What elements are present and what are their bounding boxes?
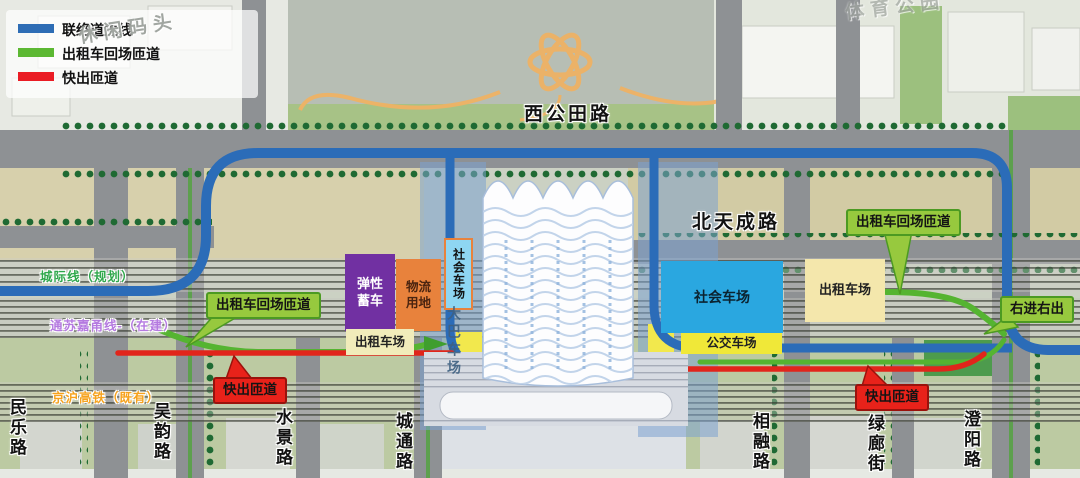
road-label-lvlang: 绿廊街 [866,414,883,474]
coach-yard-label: 大巴车场 [447,306,461,378]
logistics-land-label: 物流用地 [405,279,433,312]
social-parking-small-box: 社会车场 [444,238,473,310]
rail-label-planned-intercity: 城际线（规划） [40,266,135,285]
rail-label-tongsujiayong: 通苏嘉甬线-（在建） [50,315,177,334]
flex-vehicle-storage-label: 弹性蓄车 [355,276,385,310]
legend-label-fast-exit: 快出匝道 [62,68,118,88]
social-parking-main-box: 社会车场 [661,261,783,333]
station-roof [483,181,633,386]
legend-item-fast-exit: 快出匝道 [6,66,256,88]
station-hub-site-plan: 联络道主线 出租车回场匝道 快出匝道 休闲码头 体育公园 西公田路 北天成路 民… [0,0,1080,478]
legend-item-taxi-return: 出租车回场匝道 [6,42,256,64]
badge-fast-exit-left: 快出匝道 [213,377,287,404]
social-parking-small-label: 社会车场 [453,248,465,300]
taxi-yard-left-box: 出租车场 [346,329,414,355]
road-label-minle: 民乐路 [8,398,25,458]
taxi-yard-right-label: 出租车场 [819,282,871,299]
road-label-shuijing: 水景路 [274,408,291,468]
badge-fast-exit-right: 快出匝道 [855,384,929,411]
road-label-chengtong: 城通路 [394,412,411,472]
road-label-xigongtian: 西公田路 [524,99,612,126]
badge-right-in-right-out: 右进右出 [1000,296,1074,323]
taxi-yard-right-box: 出租车场 [805,259,885,322]
legend-swatch-fast-exit [18,72,54,81]
flex-vehicle-storage-box: 弹性蓄车 [345,254,395,331]
road-label-chengyang: 澄阳路 [962,410,979,470]
taxi-yard-left-label: 出租车场 [355,334,405,350]
transit-bus-yard-label: 公交车场 [706,335,756,351]
legend-label-taxi-return: 出租车回场匝道 [62,44,160,64]
logistics-land-box: 物流用地 [396,259,441,331]
road-label-beitiancheng: 北天成路 [692,207,780,234]
road-label-wuyun: 吴韵路 [152,402,169,462]
road-label-xiangrong: 相融路 [751,412,768,472]
rail-label-jinghu-hsr: 京沪高铁（既有） [52,387,160,406]
badge-taxi-return-left: 出租车回场匝道 [206,292,321,319]
legend-swatch-taxi-return [18,48,54,57]
transit-bus-yard-box: 公交车场 [681,333,782,354]
social-parking-main-label: 社会车场 [694,288,750,306]
badge-taxi-return-right: 出租车回场匝道 [846,209,961,236]
legend-swatch-main-line [18,24,54,33]
